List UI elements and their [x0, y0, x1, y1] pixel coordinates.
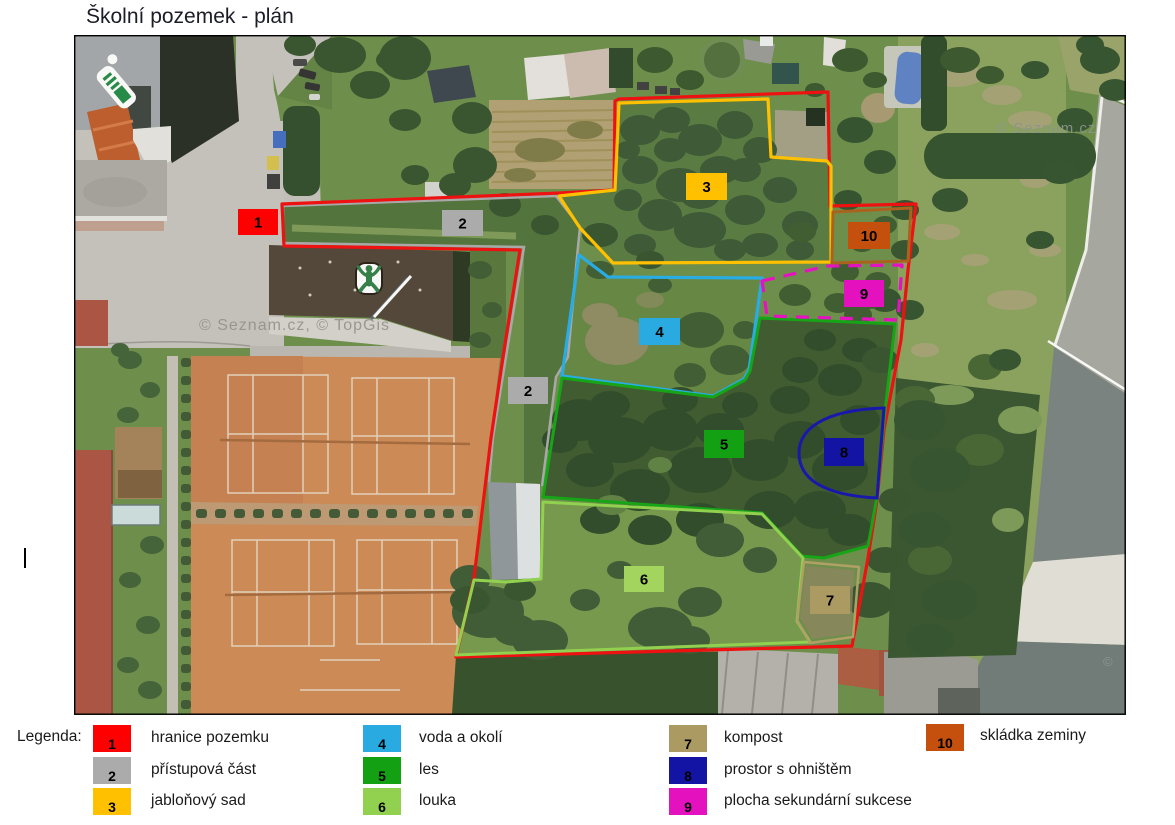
- svg-text:3: 3: [702, 179, 710, 196]
- svg-text:10: 10: [861, 228, 878, 245]
- svg-text:9: 9: [860, 286, 868, 303]
- svg-text:7: 7: [826, 593, 834, 610]
- svg-text:4: 4: [655, 324, 664, 341]
- svg-text:5: 5: [720, 437, 728, 454]
- svg-text:6: 6: [640, 572, 648, 589]
- svg-text:2: 2: [458, 216, 466, 233]
- svg-text:2: 2: [524, 383, 532, 400]
- svg-text:© Seznam.cz: © Seznam.cz: [996, 120, 1096, 137]
- svg-text:1: 1: [254, 215, 262, 232]
- svg-text:© Seznam.cz, © TopGis: © Seznam.cz, © TopGis: [199, 317, 390, 334]
- svg-text:8: 8: [840, 445, 848, 462]
- svg-text:©: ©: [1103, 654, 1113, 669]
